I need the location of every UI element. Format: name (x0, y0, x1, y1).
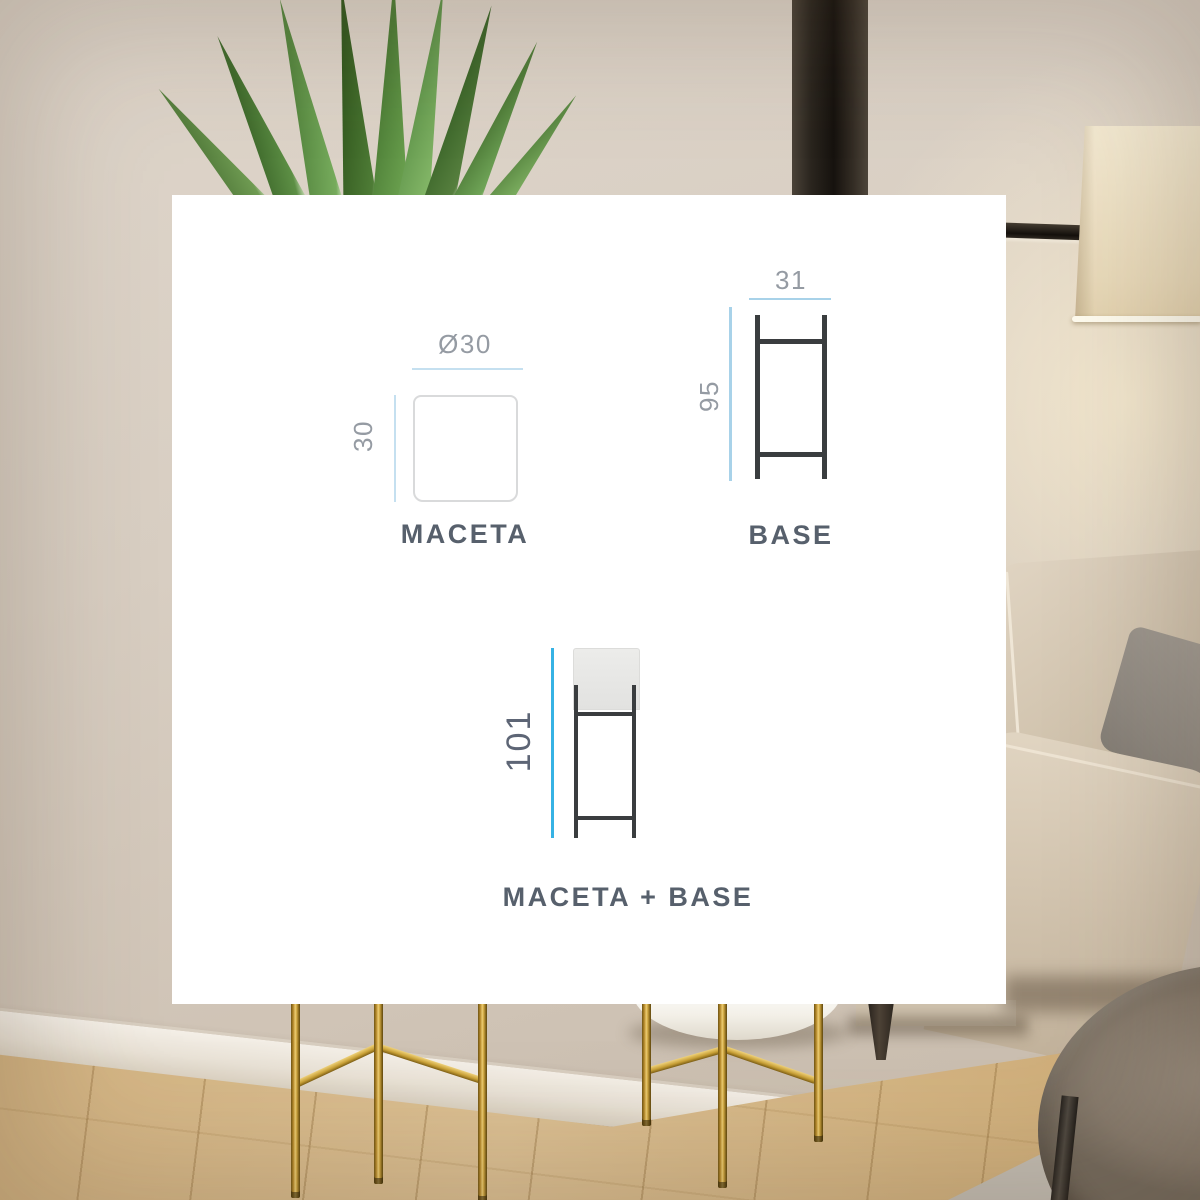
maceta-width-dimension: Ø30 (405, 329, 525, 360)
snake-plant (200, 0, 580, 200)
gold-stand-leg (718, 1002, 727, 1188)
combo-height-dimension: 101 (501, 696, 537, 786)
maceta-label: MACETA (365, 519, 565, 550)
base-label: BASE (711, 520, 871, 551)
gold-stand-leg (814, 1002, 823, 1142)
picture-frame-edge (792, 0, 868, 200)
lamp-shade-rim (1072, 316, 1200, 322)
base-height-dimension: 95 (696, 361, 722, 431)
gold-stand-leg (291, 1002, 300, 1198)
gold-stand-leg (478, 1002, 487, 1200)
maceta-width-dimension-line (412, 368, 523, 370)
gold-stand-leg (374, 1002, 383, 1184)
base-height-dimension-line (729, 307, 732, 481)
combo-label: MACETA + BASE (488, 882, 768, 913)
base-drawing-top-crossbar (755, 339, 827, 344)
gold-stand-leg (642, 1002, 651, 1126)
maceta-pot-drawing (413, 395, 518, 502)
base-width-dimension-line (749, 298, 831, 300)
dimension-diagram-panel: Ø30 30 MACETA 31 95 BASE 101 MACETA + BA… (172, 195, 1006, 1004)
combo-height-dimension-line (551, 648, 554, 838)
combo-pot-drawing (573, 648, 640, 710)
combo-drawing-bottom-crossbar (574, 816, 636, 820)
combo-drawing-top-crossbar (574, 712, 636, 716)
lamp-shade (1075, 126, 1200, 320)
maceta-height-dimension-line (394, 395, 396, 502)
base-width-dimension: 31 (741, 265, 841, 296)
maceta-height-dimension: 30 (350, 401, 376, 471)
picture-frame-bottom (1002, 222, 1090, 240)
scene: Ø30 30 MACETA 31 95 BASE 101 MACETA + BA… (0, 0, 1200, 1200)
base-drawing-bottom-crossbar (755, 452, 827, 457)
